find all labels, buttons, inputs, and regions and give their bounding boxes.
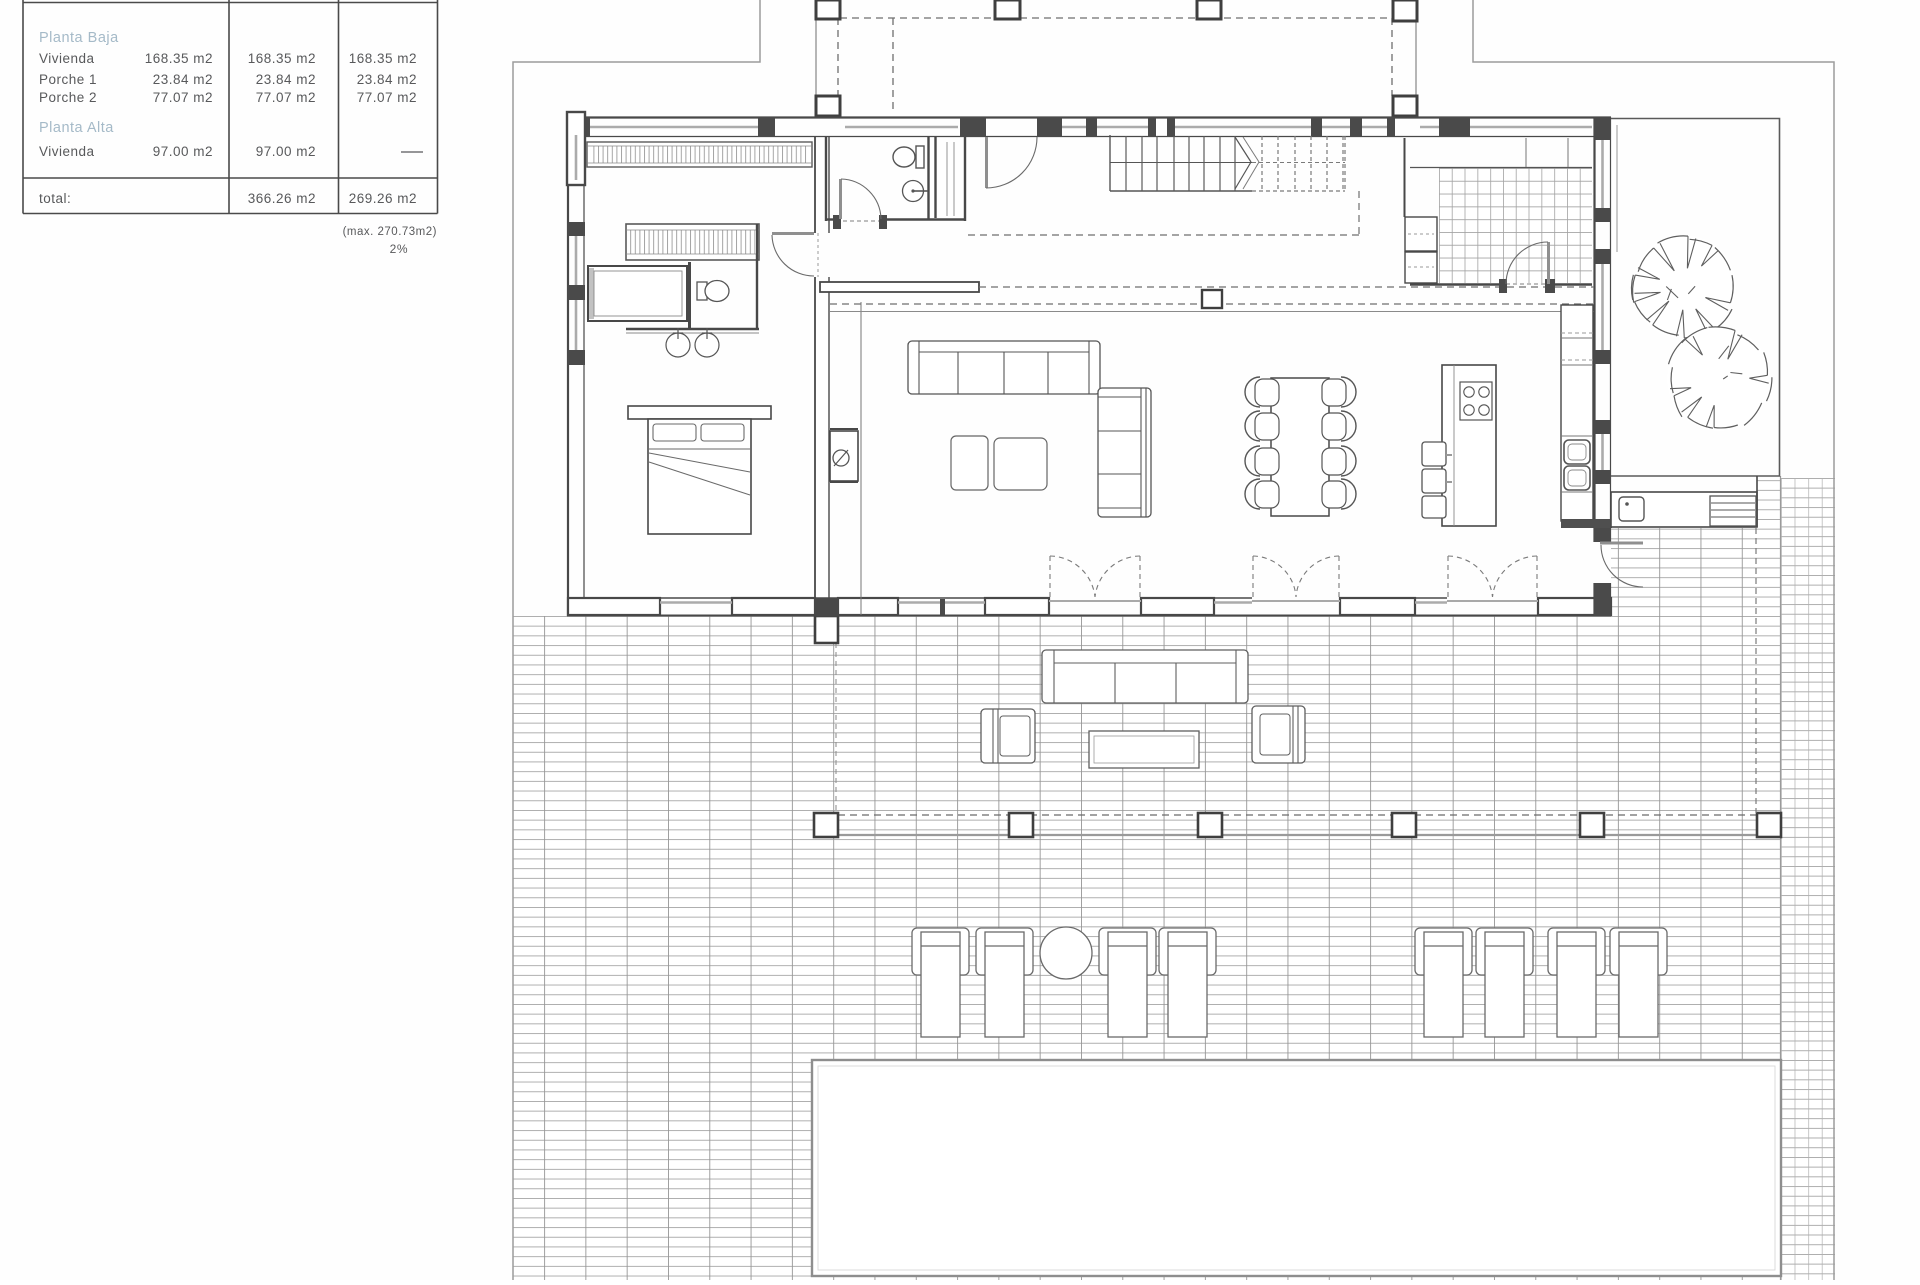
svg-text:77.07 m2: 77.07 m2 bbox=[357, 90, 417, 105]
svg-text:total:: total: bbox=[39, 191, 71, 206]
svg-text:Planta Baja: Planta Baja bbox=[39, 30, 119, 46]
svg-text:77.07 m2: 77.07 m2 bbox=[153, 90, 213, 105]
svg-text:168.35 m2: 168.35 m2 bbox=[248, 51, 316, 66]
svg-text:(max. 270.73m2): (max. 270.73m2) bbox=[343, 226, 437, 238]
svg-text:Vivienda: Vivienda bbox=[39, 144, 95, 159]
svg-text:23.84 m2: 23.84 m2 bbox=[357, 72, 417, 87]
svg-text:Porche 1: Porche 1 bbox=[39, 72, 97, 87]
svg-text:2%: 2% bbox=[390, 242, 408, 256]
svg-text:Planta Alta: Planta Alta bbox=[39, 120, 114, 136]
svg-text:23.84 m2: 23.84 m2 bbox=[153, 72, 213, 87]
svg-text:97.00 m2: 97.00 m2 bbox=[256, 144, 316, 159]
svg-text:23.84 m2: 23.84 m2 bbox=[256, 72, 316, 87]
svg-text:Vivienda: Vivienda bbox=[39, 51, 95, 66]
svg-text:366.26 m2: 366.26 m2 bbox=[248, 191, 316, 206]
svg-text:168.35 m2: 168.35 m2 bbox=[145, 51, 213, 66]
svg-text:77.07 m2: 77.07 m2 bbox=[256, 90, 316, 105]
svg-text:269.26 m2: 269.26 m2 bbox=[349, 191, 417, 206]
svg-text:Porche 2: Porche 2 bbox=[39, 90, 97, 105]
svg-text:168.35 m2: 168.35 m2 bbox=[349, 51, 417, 66]
svg-text:97.00 m2: 97.00 m2 bbox=[153, 144, 213, 159]
